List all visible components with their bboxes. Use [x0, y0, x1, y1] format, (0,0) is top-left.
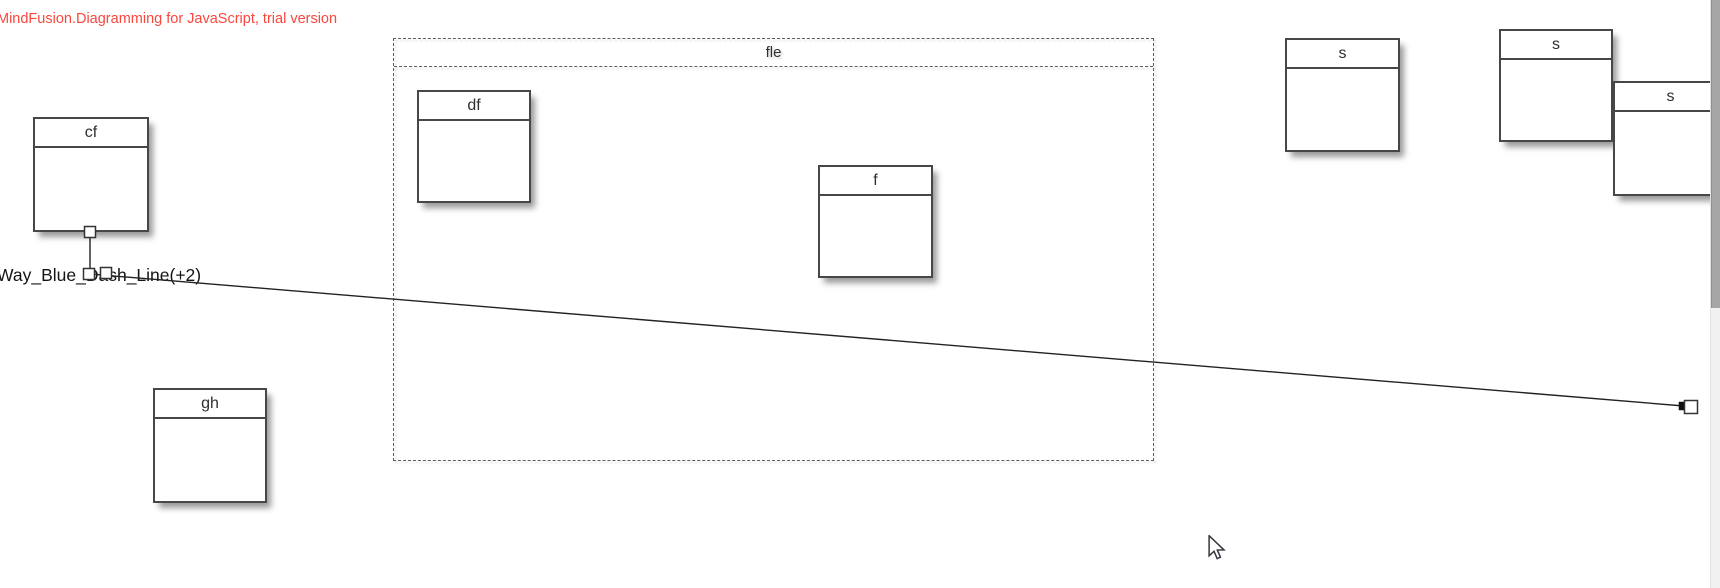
diagram-node-cf[interactable]: cf [33, 117, 149, 232]
node-title: s [1501, 31, 1611, 60]
node-title: cf [35, 119, 147, 148]
diagram-node-f[interactable]: f [818, 165, 933, 278]
diagram-node-s1[interactable]: s [1285, 38, 1400, 152]
diagram-node-s3[interactable]: s [1613, 81, 1720, 196]
node-title: f [820, 167, 931, 196]
node-title: gh [155, 390, 265, 419]
vertical-scrollbar[interactable] [1710, 0, 1720, 588]
node-title: s [1287, 40, 1398, 69]
link-label[interactable]: Way_Blue_Dash_Line(+2) [0, 265, 201, 286]
vertical-scrollbar-thumb[interactable] [1711, 0, 1720, 308]
container-title: fle [394, 39, 1153, 67]
diagram-node-gh[interactable]: gh [153, 388, 267, 503]
diagram-node-s2[interactable]: s [1499, 29, 1613, 142]
trial-watermark-text: MindFusion.Diagramming for JavaScript, t… [0, 11, 337, 27]
diagram-canvas[interactable]: MindFusion.Diagramming for JavaScript, t… [0, 0, 1720, 588]
link-end-arrow[interactable] [1680, 403, 1687, 410]
node-title: df [419, 92, 529, 121]
node-title: s [1615, 83, 1720, 112]
link-end-handle[interactable] [1685, 401, 1698, 414]
mouse-cursor-icon [1207, 535, 1229, 561]
diagram-node-df[interactable]: df [417, 90, 531, 203]
